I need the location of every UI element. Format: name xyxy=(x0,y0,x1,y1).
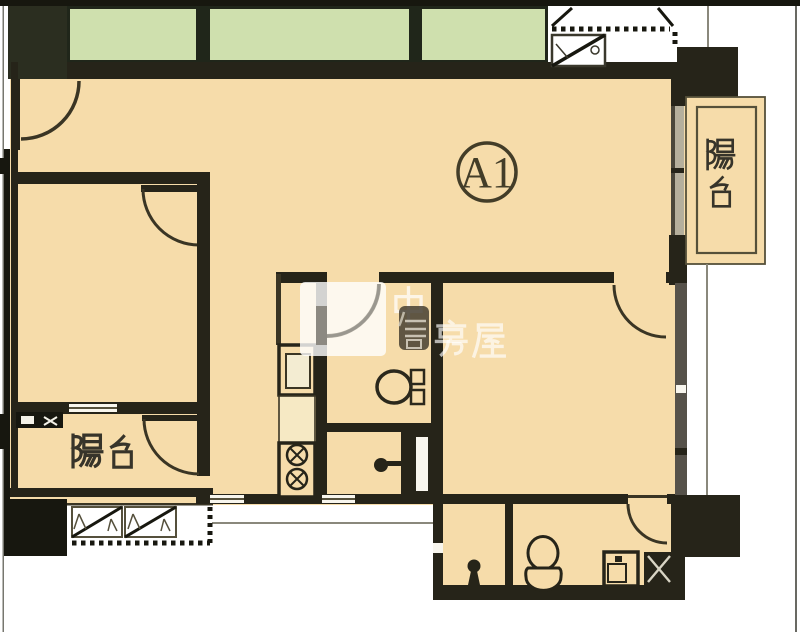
svg-text:A1: A1 xyxy=(460,148,514,197)
